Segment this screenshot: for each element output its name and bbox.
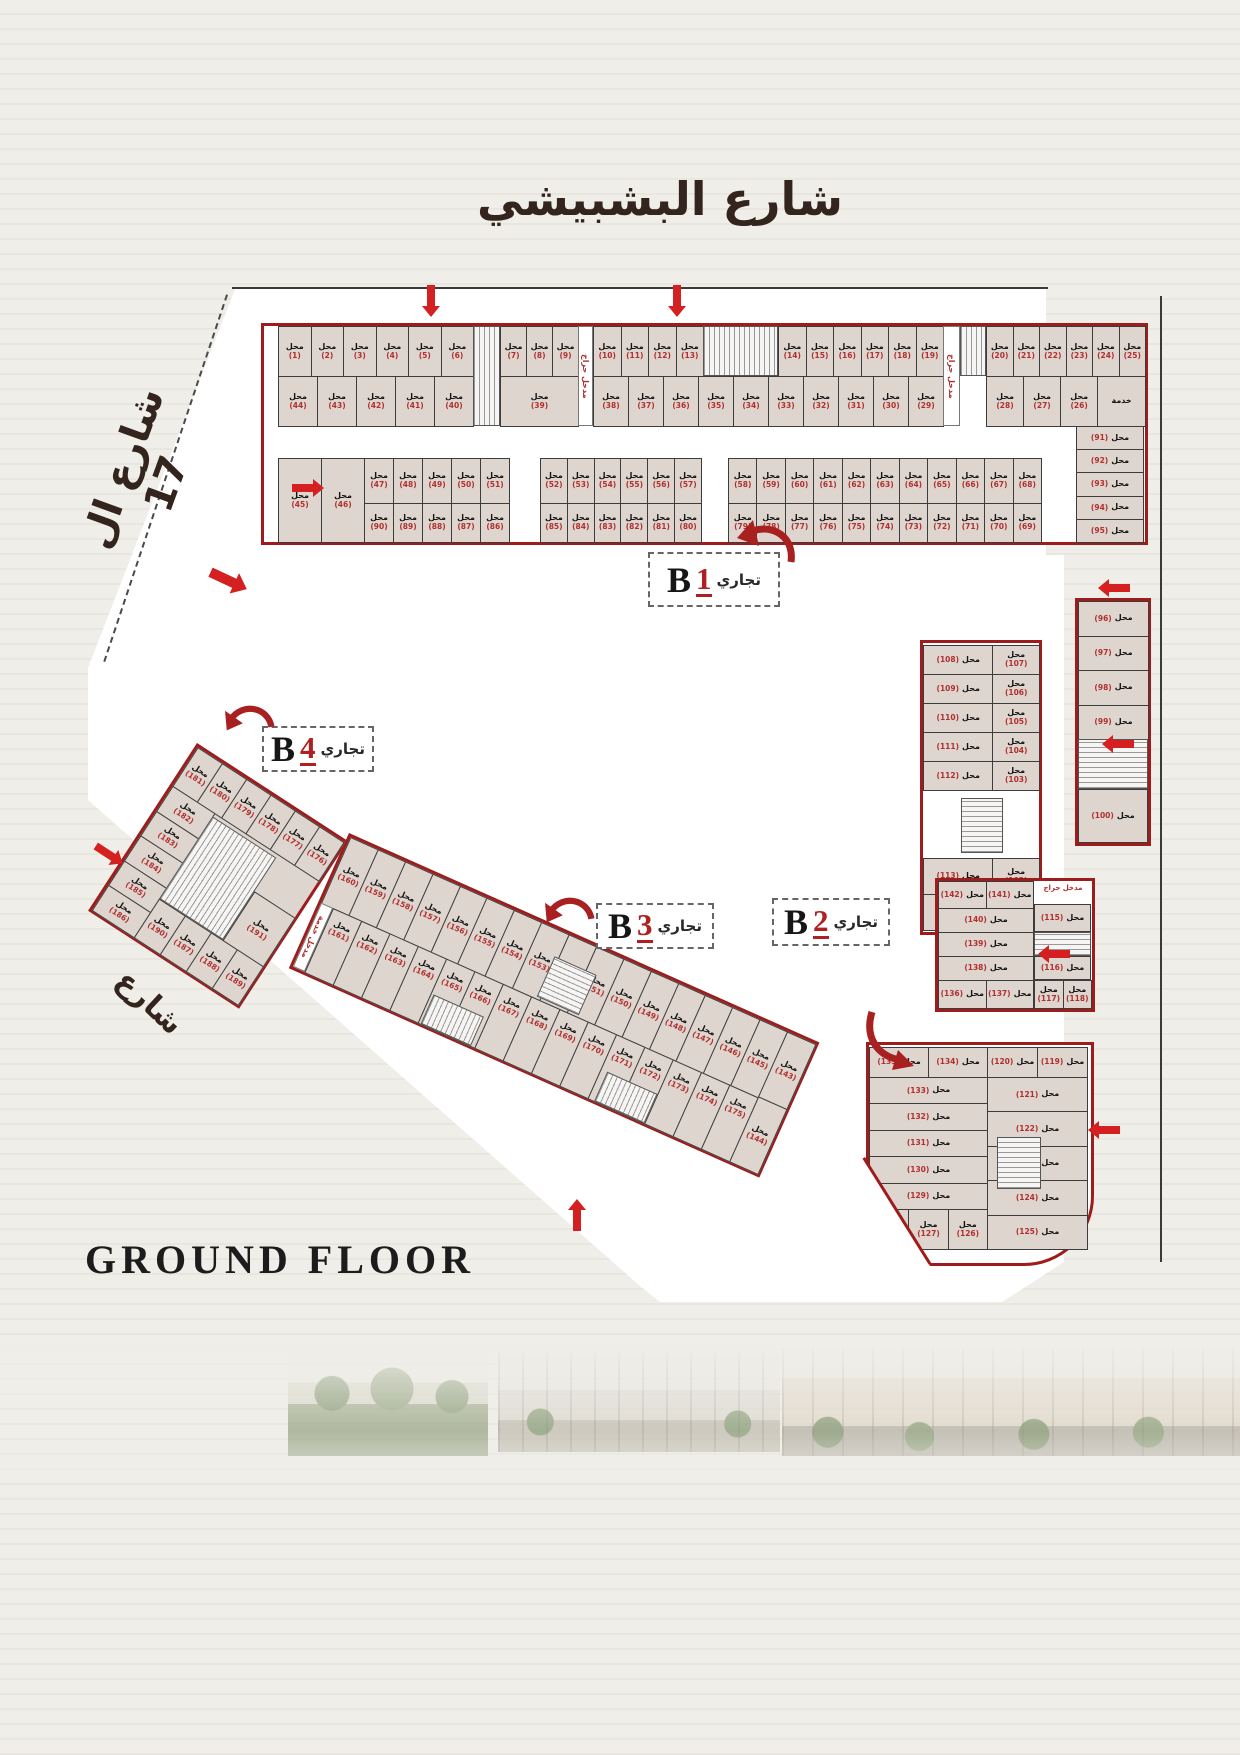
shop-pair-row: محل(109) محل(106)	[923, 674, 1039, 703]
shop-cell: محل(3)	[343, 326, 377, 377]
shop-cell: محل(91)	[1076, 426, 1144, 450]
b1-row-a5: محل(20)محل(21)محل(22)محل(23)محل(24)محل(2…	[986, 326, 1145, 376]
shop-cell: محل(110)	[923, 703, 993, 733]
shop-cell: محل(88)	[422, 503, 452, 543]
shop-cell: محل(15)	[806, 326, 835, 377]
shop-cell: محل(90)	[364, 503, 394, 543]
shop-pair-row: محل(110) محل(105)	[923, 703, 1039, 732]
garage-entrance-text: مدخل جراج	[1035, 884, 1091, 904]
entrance-arrow	[427, 285, 435, 307]
shop-cell: محل(51)	[480, 458, 510, 504]
shop-cell: محل(137)	[986, 980, 1035, 1009]
b2-lower-left-singles: محل(133)محل(132)محل(131)محل(130)محل(129)	[869, 1077, 987, 1209]
shop-cell: محل(6)	[441, 326, 475, 377]
shop-cell: محل(34)	[733, 376, 769, 427]
shop-cell: محل(64)	[899, 458, 928, 504]
shop-cell: محل(42)	[356, 376, 396, 427]
shop-cell: محل(18)	[888, 326, 917, 377]
stairwell	[473, 326, 500, 426]
b1-row-c3: محل(52)محل(53)محل(54)محل(55)محل(56)محل(5…	[540, 458, 701, 503]
shop-cell: محل(76)	[813, 503, 842, 543]
entrance-arrow	[94, 843, 117, 862]
shop-cell: محل(37)	[628, 376, 664, 427]
shop-cell: محل(48)	[393, 458, 423, 504]
curved-arrow-b3	[540, 892, 600, 942]
shop-cell: محل(70)	[984, 503, 1013, 543]
shop-cell: محل(2)	[311, 326, 345, 377]
shop-cell: محل(92)	[1076, 449, 1144, 473]
shop-cell: محل(75)	[842, 503, 871, 543]
b2-upper-right-pair: محل(117) محل(118)	[1034, 980, 1091, 1008]
shop-cell: محل(108)	[923, 645, 993, 675]
shop-cell: محل(58)	[728, 458, 757, 504]
entrance-arrow	[1098, 1126, 1120, 1134]
stairwell	[703, 326, 778, 376]
b2-upper-left-pair2: محل(136) محل(137)	[938, 980, 1033, 1008]
shop-cell: محل(67)	[984, 458, 1013, 504]
shop-cell: محل(5)	[408, 326, 442, 377]
shop-cell: محل(27)	[1023, 376, 1061, 427]
b1-row-a4: محل(14)محل(15)محل(16)محل(17)محل(18)محل(1…	[778, 326, 943, 376]
b1-row-b3: محل(38)محل(37)محل(36)محل(35)محل(34)محل(3…	[593, 376, 943, 426]
garage-entrance-text: مدخل جراج	[943, 326, 960, 426]
shop-cell: محل(16)	[833, 326, 862, 377]
shop-cell: محل(10)	[593, 326, 622, 377]
b1-pairs-103-108: محل(108) محل(107) محل(109) محل(106) محل(…	[923, 645, 1039, 790]
shop-cell: محل(40)	[434, 376, 474, 427]
curved-arrow-b2	[862, 1008, 918, 1070]
shop-cell: محل(4)	[376, 326, 410, 377]
shop-cell: محل(112)	[923, 761, 993, 791]
b1-row-c2: محل(47)محل(48)محل(49)محل(50)محل(51)	[364, 458, 509, 503]
shop-cell: محل(31)	[838, 376, 874, 427]
shop-cell: محل(25)	[1119, 326, 1147, 377]
shop-cell: محل(103)	[992, 761, 1040, 791]
stairwell	[997, 1137, 1041, 1189]
floor-plan-page: { "labels": { "shop": "محل", "service": …	[0, 0, 1240, 1755]
shop-cell: محل(28)	[986, 376, 1024, 427]
b1-row-a2: محل(7)محل(8)محل(9)	[500, 326, 578, 376]
shop-cell: محل(1)	[278, 326, 312, 377]
b1-tall-cells: محل(45)محل(46)	[278, 458, 364, 542]
shop-cell: محل(47)	[364, 458, 394, 504]
shop-cell: محل(32)	[803, 376, 839, 427]
shop-cell: محل(131)	[869, 1130, 988, 1157]
shop-cell: محل(99)	[1078, 705, 1149, 741]
shop-pair-row: محل(112) محل(103)	[923, 761, 1039, 790]
shop-cell: محل(130)	[869, 1156, 988, 1183]
shop-cell: محل(9)	[552, 326, 579, 377]
shop-cell: محل(85)	[540, 503, 568, 543]
shop-cell: محل(36)	[663, 376, 699, 427]
shop-cell: محل(141)	[986, 881, 1035, 909]
shop-cell: محل(29)	[908, 376, 944, 427]
shop-cell: محل(38)	[593, 376, 629, 427]
curved-arrow-b4	[220, 700, 280, 750]
shop-cell: محل(8)	[526, 326, 553, 377]
shop-cell: محل(104)	[992, 732, 1040, 762]
garage-entrance-text: مدخل جراج	[578, 326, 593, 426]
shop-cell: محل(56)	[647, 458, 675, 504]
shop-cell: محل(41)	[395, 376, 435, 427]
shop-cell: محل(46)	[321, 458, 365, 543]
entrance-arrow	[1112, 740, 1134, 748]
b1-row-a3: محل(10)محل(11)محل(12)محل(13)	[593, 326, 703, 376]
b1-row-c4: محل(58)محل(59)محل(60)محل(61)محل(62)محل(6…	[728, 458, 1041, 503]
b2-lower-right-pair: محل(120) محل(119)	[987, 1047, 1087, 1077]
shop-cell: محل(13)	[676, 326, 705, 377]
shop-cell: محل(39)	[500, 376, 579, 427]
shop-cell: محل(21)	[1013, 326, 1041, 377]
shop-cell: محل(33)	[768, 376, 804, 427]
shop-cell: محل(62)	[842, 458, 871, 504]
shop-cell: محل(134)	[928, 1047, 988, 1078]
shop-cell: محل(86)	[480, 503, 510, 543]
street-name-lower-left: شارع	[109, 963, 190, 1042]
shop-cell: محل(80)	[674, 503, 702, 543]
b1-row-b4: محل(28)محل(27)محل(26) خدمة	[986, 376, 1145, 426]
entrance-arrow	[1048, 950, 1070, 958]
shop-cell: محل(106)	[992, 674, 1040, 704]
shop-cell: محل(24)	[1092, 326, 1120, 377]
shop-cell: محل(105)	[992, 703, 1040, 733]
shop-cell: محل(68)	[1013, 458, 1042, 504]
shop-cell: محل(138)	[938, 956, 1034, 981]
shop-cell: محل(133)	[869, 1077, 988, 1104]
b1-col-96-99: محل(96)محل(97)محل(98)محل(99)	[1078, 601, 1148, 739]
stairwell	[960, 326, 986, 376]
shop-cell: محل(142)	[938, 881, 987, 909]
shop-cell: محل(17)	[861, 326, 890, 377]
shop-cell: محل(66)	[956, 458, 985, 504]
block-b3-label: B 3 تجاري	[596, 903, 714, 949]
shop-cell: محل(19)	[916, 326, 945, 377]
b1-row-b1: محل(44)محل(43)محل(42)محل(41)محل(40)	[278, 376, 473, 426]
curved-arrow-b1	[735, 518, 799, 574]
shop-cell: محل(83)	[594, 503, 622, 543]
shop-cell: محل(71)	[956, 503, 985, 543]
right-street-line	[1160, 296, 1162, 1262]
shop-cell: محل(111)	[923, 732, 993, 762]
shop-cell: محل(26)	[1060, 376, 1098, 427]
shop-cell: محل(65)	[927, 458, 956, 504]
shop-cell: محل(126)	[948, 1209, 988, 1250]
preview-fade	[0, 1340, 1240, 1470]
shop-cell: محل(98)	[1078, 670, 1149, 706]
stairwell	[961, 798, 1003, 853]
shop-cell: محل(52)	[540, 458, 568, 504]
shop-cell: محل(23)	[1066, 326, 1094, 377]
block-b1-col-96-100: محل(96)محل(97)محل(98)محل(99) محل(100)	[1075, 598, 1151, 846]
shop-cell: محل(95)	[1076, 519, 1144, 543]
shop-cell: محل(45)	[278, 458, 322, 543]
b1-row-d2: محل(85)محل(84)محل(83)محل(82)محل(81)محل(8…	[540, 503, 701, 542]
shop-cell: محل(84)	[567, 503, 595, 543]
shop-cell: محل(139)	[938, 932, 1034, 957]
shop-cell: محل(43)	[317, 376, 357, 427]
shop-cell: محل(97)	[1078, 636, 1149, 672]
shop-cell: محل(44)	[278, 376, 318, 427]
street-name-top: شارع البشبيشي	[340, 172, 980, 226]
block-b2-label: B 2 تجاري	[772, 898, 890, 946]
shop-cell: محل(140)	[938, 908, 1034, 933]
shop-cell: محل(82)	[620, 503, 648, 543]
shop-cell: محل(120)	[987, 1047, 1038, 1078]
block-b2-lower: محل(135) محل(134) محل(133)محل(132)محل(13…	[866, 1042, 1094, 1266]
shop-cell: محل(49)	[422, 458, 452, 504]
shop-cell: محل(57)	[674, 458, 702, 504]
shop-cell: محل(132)	[869, 1103, 988, 1130]
shop-cell: محل(61)	[813, 458, 842, 504]
b1-row-b2: محل(39)	[500, 376, 578, 426]
shop-cell: محل(87)	[451, 503, 481, 543]
entrance-arrow	[573, 1209, 581, 1231]
shop-pair-row: محل(108) محل(107)	[923, 645, 1039, 674]
shop-cell: محل(11)	[621, 326, 650, 377]
entrance-arrow	[673, 285, 681, 307]
shop-cell: محل(81)	[647, 503, 675, 543]
shop-cell: محل(136)	[938, 980, 987, 1009]
shop-cell: محل(14)	[778, 326, 807, 377]
shop-cell: محل(69)	[1013, 503, 1042, 543]
shop-cell: محل(125)	[987, 1215, 1088, 1250]
shop-cell: محل(22)	[1039, 326, 1067, 377]
b1-row-d1: محل(90)محل(89)محل(88)محل(87)محل(86)	[364, 503, 509, 542]
block-b2-upper: محل(142) محل(141) محل(140)محل(139)محل(13…	[935, 878, 1095, 1012]
shop-cell: محل(72)	[927, 503, 956, 543]
shop-cell: محل(93)	[1076, 472, 1144, 496]
service-cell: خدمة	[1097, 376, 1146, 427]
shop-cell: محل(7)	[500, 326, 527, 377]
top-street-line	[232, 287, 1048, 289]
block-b1-strip: محل(1)محل(2)محل(3)محل(4)محل(5)محل(6) محل…	[261, 323, 1148, 545]
shop-cell: محل(60)	[785, 458, 814, 504]
shop-cell: محل(63)	[870, 458, 899, 504]
floor-title: GROUND FLOOR	[85, 1236, 475, 1283]
shop-cell: محل(55)	[620, 458, 648, 504]
shop-pair-row: محل(111) محل(104)	[923, 732, 1039, 761]
shop-cell: محل(109)	[923, 674, 993, 704]
shop-cell: محل(12)	[648, 326, 677, 377]
shop-cell: محل(117)	[1034, 980, 1064, 1009]
shop-cell: محل(119)	[1037, 1047, 1088, 1078]
b2-upper-left-singles: محل(140)محل(139)محل(138)	[938, 908, 1033, 980]
shop-cell: محل(53)	[567, 458, 595, 504]
b1-col-91-95: محل(91)محل(92)محل(93)محل(94)محل(95)	[1076, 426, 1143, 542]
shop-cell: محل(74)	[870, 503, 899, 543]
shop-cell: محل(30)	[873, 376, 909, 427]
shop-cell: محل(54)	[594, 458, 622, 504]
shop-cell: محل(118)	[1063, 980, 1093, 1009]
shop-cell: محل(59)	[756, 458, 785, 504]
shop-cell: محل(20)	[986, 326, 1014, 377]
shop-cell: محل(121)	[987, 1077, 1088, 1112]
shop-cell: محل(73)	[899, 503, 928, 543]
shop-cell: محل(100)	[1078, 789, 1148, 843]
shop-cell: محل(50)	[451, 458, 481, 504]
b1-row-a1: محل(1)محل(2)محل(3)محل(4)محل(5)محل(6)	[278, 326, 473, 376]
shop-cell: محل(107)	[992, 645, 1040, 675]
shop-cell: محل(89)	[393, 503, 423, 543]
b2-upper-left: محل(142) محل(141)	[938, 881, 1033, 908]
entrance-arrow	[292, 484, 314, 492]
shop-cell: محل(35)	[698, 376, 734, 427]
shop-cell: محل(115)	[1034, 904, 1091, 932]
entrance-arrow	[1108, 584, 1130, 592]
shop-cell: محل(96)	[1078, 601, 1149, 637]
shop-cell: محل(94)	[1076, 496, 1144, 520]
